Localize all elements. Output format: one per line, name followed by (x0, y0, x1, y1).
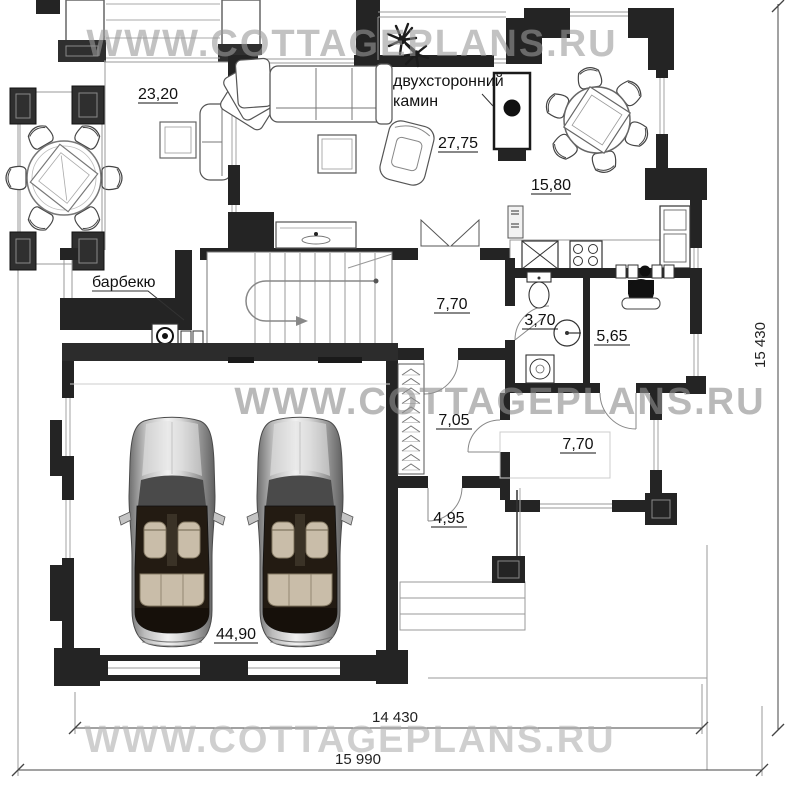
kitchen (510, 206, 690, 270)
barbecue-corner (60, 298, 203, 348)
car-icon (119, 417, 225, 647)
porch-column (492, 556, 525, 583)
dimension-right-vertical: 15 430 (752, 322, 769, 368)
watermark-middle: WWW.COTTAGEPLANS.RU (234, 381, 765, 423)
room-area-kitchen-dining: 15,80 (531, 177, 571, 194)
barbecue-label: барбекю (92, 274, 155, 291)
stove-icon (570, 241, 602, 269)
fireplace-leader-line (482, 94, 493, 106)
dining-table-icon (543, 66, 651, 174)
room-area-garage: 44,90 (216, 626, 256, 643)
room-area-boiler: 5,65 (596, 328, 627, 345)
room-area-hall: 7,70 (436, 296, 467, 313)
stairs-icon (207, 252, 392, 346)
room-area-bathroom: 3,70 (524, 312, 555, 329)
room-area-terrace: 23,20 (138, 86, 178, 103)
chimney-vent-icon (508, 206, 523, 238)
room-area-living: 27,75 (438, 135, 478, 152)
washing-machine-icon (526, 355, 554, 383)
washbasin-icon (554, 320, 581, 346)
entry-door-arc (468, 420, 500, 452)
floor-plan-svg: 23,20 27,75 15,80 7,70 3,70 5,65 7,05 7,… (0, 0, 792, 788)
watermark-bottom: WWW.COTTAGEPLANS.RU (84, 719, 615, 761)
room-area-porch: 4,95 (433, 510, 464, 527)
coffee-table-icon (318, 135, 356, 173)
watermark-top: WWW.COTTAGEPLANS.RU (86, 23, 617, 65)
toilet-icon (527, 272, 551, 308)
fireplace-label-line2: камин (393, 93, 438, 110)
car-icon (247, 417, 353, 647)
sink-icon (522, 241, 558, 269)
porch-steps (400, 582, 525, 630)
armchair-icon (377, 118, 436, 187)
floor-plan-page: 23,20 27,75 15,80 7,70 3,70 5,65 7,05 7,… (0, 0, 792, 788)
corner-sofa-icon (218, 58, 392, 132)
fireplace-label-line1: двухсторонний (393, 73, 504, 90)
boiler-icon (616, 265, 674, 309)
fridge-icon (660, 206, 690, 268)
room-area-entry: 7,70 (562, 436, 593, 453)
veranda-sofa-icon (200, 104, 232, 180)
tv-stand-icon (276, 222, 356, 248)
double-door-icon (421, 220, 479, 246)
